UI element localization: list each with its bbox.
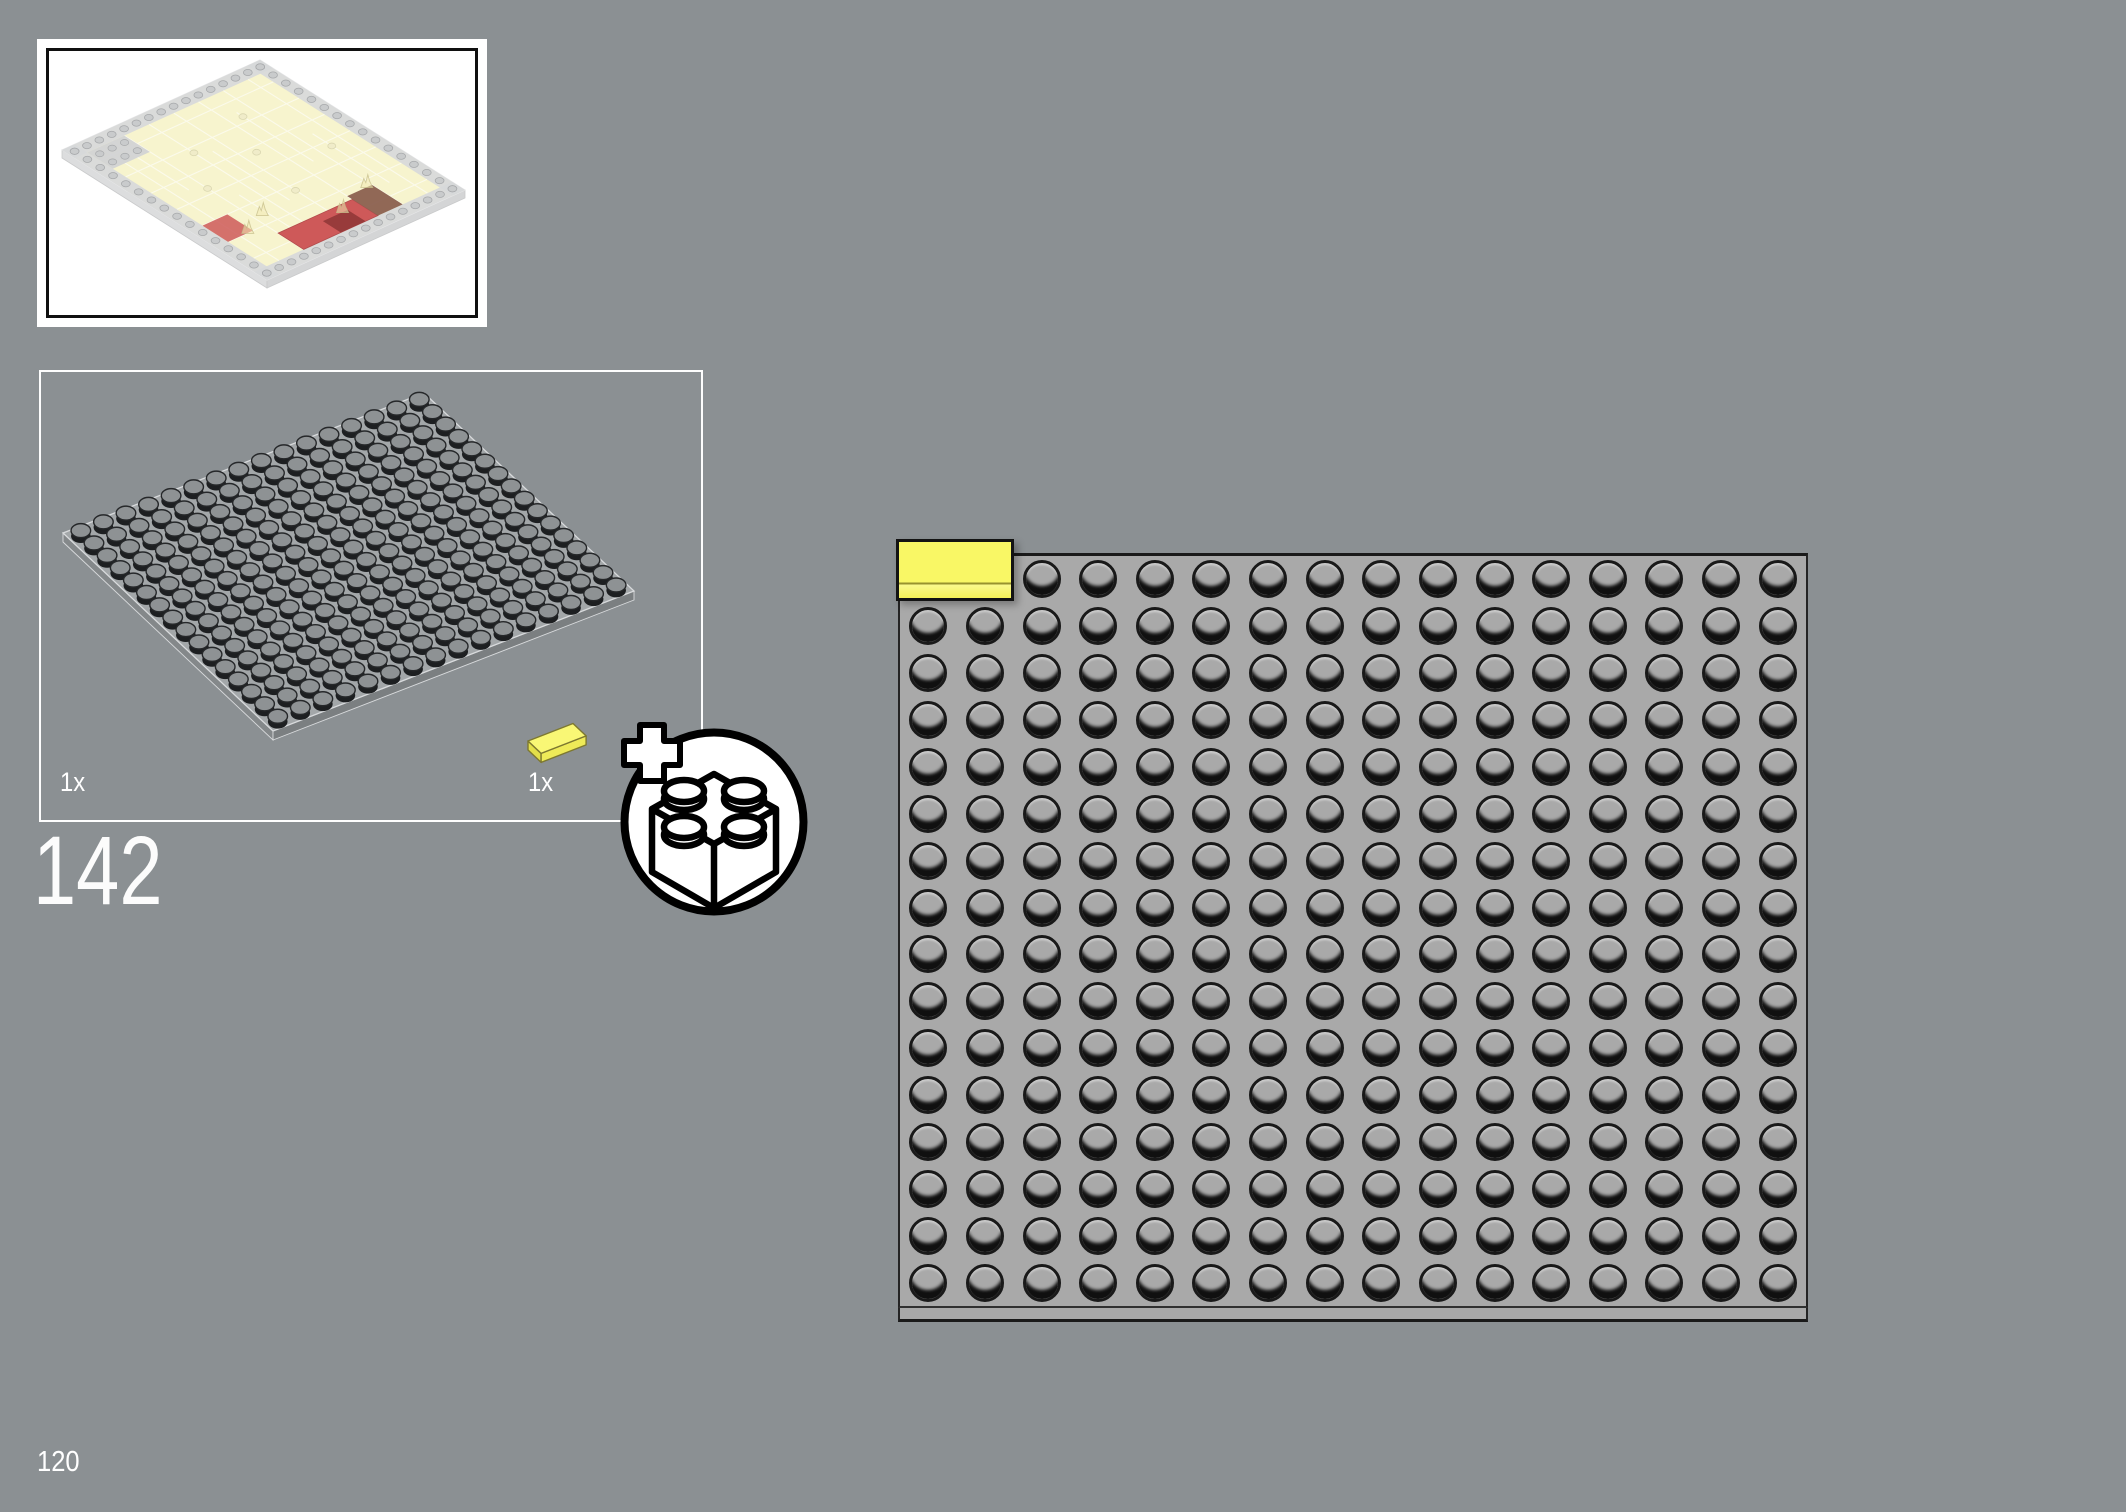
stud (1589, 1029, 1627, 1067)
stud (1589, 982, 1627, 1020)
stud (1079, 889, 1117, 927)
stud (1136, 935, 1174, 973)
part-quantity-tile: 1x (528, 769, 553, 796)
stud (1249, 1170, 1287, 1208)
stud (1419, 982, 1457, 1020)
parts-callout-box (39, 370, 703, 822)
stud (966, 1264, 1004, 1302)
stud (1249, 982, 1287, 1020)
stud (1079, 1123, 1117, 1161)
stud (1136, 842, 1174, 880)
stud (1419, 654, 1457, 692)
stud (1362, 842, 1400, 880)
stud (1476, 1076, 1514, 1114)
stud (1362, 560, 1400, 598)
stud (1136, 560, 1174, 598)
stud (1589, 607, 1627, 645)
part-tile-1x2-yellow (528, 724, 586, 763)
stud (1192, 1170, 1230, 1208)
stud (1136, 748, 1174, 786)
stud (1362, 889, 1400, 927)
stud (1759, 560, 1797, 598)
stud (1532, 607, 1570, 645)
stud (1249, 560, 1287, 598)
stud (1532, 1264, 1570, 1302)
stud (1419, 607, 1457, 645)
stud (1136, 1217, 1174, 1255)
main-plate-16x16 (898, 553, 1808, 1308)
stud (1136, 1123, 1174, 1161)
stud (1419, 748, 1457, 786)
stud (1079, 1217, 1117, 1255)
stud (1136, 795, 1174, 833)
stud-field (900, 556, 1806, 1306)
stud (1306, 560, 1344, 598)
stud (1306, 1076, 1344, 1114)
stud (1589, 842, 1627, 880)
preview-box (46, 48, 478, 318)
stud (1136, 889, 1174, 927)
stud (1419, 1170, 1457, 1208)
stud (1249, 842, 1287, 880)
stud (1249, 701, 1287, 739)
stud (1023, 748, 1061, 786)
stud (1249, 1076, 1287, 1114)
preview-render (62, 60, 465, 288)
stud (1702, 1029, 1740, 1067)
stud (1532, 935, 1570, 973)
stud (1589, 1076, 1627, 1114)
stud (1759, 1123, 1797, 1161)
parts-illustration (41, 372, 701, 820)
instruction-page: { "page": { "step_number": "142", "page_… (0, 0, 2126, 1512)
stud (1023, 1264, 1061, 1302)
stud (1023, 889, 1061, 927)
stud (1589, 701, 1627, 739)
stud (1362, 1029, 1400, 1067)
stud (1306, 1170, 1344, 1208)
stud (1136, 1170, 1174, 1208)
stud (1362, 795, 1400, 833)
stud (1192, 701, 1230, 739)
stud (1589, 654, 1627, 692)
stud (1759, 1170, 1797, 1208)
stud (1306, 842, 1344, 880)
stud (1136, 1264, 1174, 1302)
stud (1192, 607, 1230, 645)
stud (1702, 842, 1740, 880)
stud (1476, 982, 1514, 1020)
stud (1419, 1029, 1457, 1067)
stud (1079, 842, 1117, 880)
stud (1702, 982, 1740, 1020)
stud (1702, 701, 1740, 739)
stud (1645, 982, 1683, 1020)
stud (1645, 607, 1683, 645)
stud (1419, 795, 1457, 833)
stud (1362, 982, 1400, 1020)
stud (1419, 701, 1457, 739)
stud (1589, 748, 1627, 786)
stud (1136, 607, 1174, 645)
stud (1079, 1264, 1117, 1302)
stud (1023, 1076, 1061, 1114)
stud (1645, 701, 1683, 739)
stud (1645, 654, 1683, 692)
stud (966, 935, 1004, 973)
stud (1532, 560, 1570, 598)
stud (1702, 607, 1740, 645)
stud (909, 701, 947, 739)
stud (1476, 1217, 1514, 1255)
stud (1759, 701, 1797, 739)
stud (1192, 842, 1230, 880)
stud (1249, 1264, 1287, 1302)
stud (1645, 889, 1683, 927)
stud (1476, 1123, 1514, 1161)
stud (1192, 935, 1230, 973)
stud (1419, 1123, 1457, 1161)
stud (1759, 795, 1797, 833)
stud (1023, 701, 1061, 739)
stud (1702, 1217, 1740, 1255)
stud (1079, 654, 1117, 692)
stud (1476, 1170, 1514, 1208)
stud (1192, 1217, 1230, 1255)
stud (1702, 935, 1740, 973)
stud (1306, 1029, 1344, 1067)
stud (1759, 748, 1797, 786)
stud (1476, 842, 1514, 880)
stud (1645, 560, 1683, 598)
stud (1645, 1264, 1683, 1302)
stud (1476, 935, 1514, 973)
stud (1192, 654, 1230, 692)
stud (1192, 1029, 1230, 1067)
stud (1306, 982, 1344, 1020)
stud (1759, 1264, 1797, 1302)
stud (1079, 1029, 1117, 1067)
stud (1759, 1029, 1797, 1067)
stud (1476, 748, 1514, 786)
stud (909, 1123, 947, 1161)
stud (1023, 842, 1061, 880)
stud (1249, 1123, 1287, 1161)
stud (1419, 1076, 1457, 1114)
stud (1759, 654, 1797, 692)
stud (1702, 1264, 1740, 1302)
stud (966, 842, 1004, 880)
stud (1023, 1029, 1061, 1067)
stud (909, 982, 947, 1020)
main-plate-side-edge (898, 1308, 1808, 1322)
stud (1023, 1217, 1061, 1255)
stud (1702, 748, 1740, 786)
stud (1362, 748, 1400, 786)
stud (1192, 1123, 1230, 1161)
stud (1476, 654, 1514, 692)
stud (1079, 935, 1117, 973)
stud (1023, 982, 1061, 1020)
stud (1136, 1076, 1174, 1114)
stud (1419, 889, 1457, 927)
stud (966, 654, 1004, 692)
stud (1362, 1076, 1400, 1114)
stud (1306, 889, 1344, 927)
stud (1532, 1170, 1570, 1208)
stud (1306, 1264, 1344, 1302)
stud (966, 748, 1004, 786)
stud (1362, 1217, 1400, 1255)
stud (1645, 1029, 1683, 1067)
stud (1249, 1029, 1287, 1067)
stud (1136, 654, 1174, 692)
stud (1589, 1264, 1627, 1302)
stud (1306, 1123, 1344, 1161)
stud (1192, 982, 1230, 1020)
stud (1192, 560, 1230, 598)
stud (909, 795, 947, 833)
stud (1532, 842, 1570, 880)
stud (1645, 935, 1683, 973)
stud (1136, 701, 1174, 739)
stud (1249, 1217, 1287, 1255)
stud (1702, 889, 1740, 927)
stud (1532, 1217, 1570, 1255)
stud (1249, 889, 1287, 927)
stud (1645, 1123, 1683, 1161)
stud (1079, 748, 1117, 786)
stud (909, 1076, 947, 1114)
stud (1476, 795, 1514, 833)
stud (1023, 1170, 1061, 1208)
stud (1249, 654, 1287, 692)
stud (1249, 748, 1287, 786)
stud (1702, 1123, 1740, 1161)
stud (1079, 982, 1117, 1020)
stud (1532, 1029, 1570, 1067)
stud (966, 889, 1004, 927)
stud (909, 935, 947, 973)
stud (1362, 701, 1400, 739)
stud (1702, 1076, 1740, 1114)
stud (1079, 795, 1117, 833)
stud (966, 701, 1004, 739)
stud (1419, 560, 1457, 598)
stud (909, 842, 947, 880)
stud (1759, 889, 1797, 927)
stud (1589, 1123, 1627, 1161)
stud (966, 982, 1004, 1020)
stud (909, 1217, 947, 1255)
stud (909, 1029, 947, 1067)
stud (909, 1170, 947, 1208)
stud (1702, 560, 1740, 598)
stud (1589, 889, 1627, 927)
step-number: 142 (33, 822, 162, 919)
stud (1759, 607, 1797, 645)
stud (1759, 982, 1797, 1020)
stud (1645, 1217, 1683, 1255)
stud (1645, 748, 1683, 786)
stud (1759, 1217, 1797, 1255)
stud (1192, 1264, 1230, 1302)
stud (1306, 795, 1344, 833)
stud (1532, 701, 1570, 739)
stud (1362, 1123, 1400, 1161)
stud (1589, 1217, 1627, 1255)
page-number: 120 (37, 1448, 80, 1477)
stud (909, 748, 947, 786)
stud (1476, 701, 1514, 739)
part-quantity-plate: 1x (60, 769, 85, 796)
stud (1645, 795, 1683, 833)
stud (1249, 795, 1287, 833)
stud (1532, 748, 1570, 786)
stud (1192, 1076, 1230, 1114)
stud (1306, 701, 1344, 739)
stud (1362, 1264, 1400, 1302)
stud (1192, 889, 1230, 927)
stud (1249, 935, 1287, 973)
stud (1645, 1170, 1683, 1208)
stud (1079, 607, 1117, 645)
stud (966, 1217, 1004, 1255)
stud (1645, 1076, 1683, 1114)
stud (1306, 748, 1344, 786)
stud (1306, 1217, 1344, 1255)
stud (1362, 935, 1400, 973)
stud (1589, 1170, 1627, 1208)
stud (1532, 982, 1570, 1020)
stud (1136, 1029, 1174, 1067)
stud (1079, 1076, 1117, 1114)
stud (1023, 607, 1061, 645)
plus-icon (618, 719, 686, 787)
stud (1023, 560, 1061, 598)
stud (966, 1076, 1004, 1114)
stud (1419, 842, 1457, 880)
stud (1306, 654, 1344, 692)
stud (909, 654, 947, 692)
stud (1023, 935, 1061, 973)
stud (1023, 1123, 1061, 1161)
stud (909, 607, 947, 645)
stud (1419, 1264, 1457, 1302)
stud (966, 1170, 1004, 1208)
stud (966, 1123, 1004, 1161)
stud (1419, 1217, 1457, 1255)
stud (1702, 1170, 1740, 1208)
stud (1306, 935, 1344, 973)
stud (1362, 607, 1400, 645)
stud (1249, 607, 1287, 645)
stud (1532, 889, 1570, 927)
stud (1306, 607, 1344, 645)
stud (1532, 654, 1570, 692)
stud (1419, 935, 1457, 973)
stud (909, 889, 947, 927)
stud (1192, 748, 1230, 786)
stud (1192, 795, 1230, 833)
stud (1476, 1264, 1514, 1302)
stud (1136, 982, 1174, 1020)
stud (1476, 607, 1514, 645)
subassembly-preview-image (49, 51, 475, 315)
stud (1702, 795, 1740, 833)
stud (966, 795, 1004, 833)
placed-yellow-tile (896, 539, 1014, 601)
stud (1702, 654, 1740, 692)
stud (1476, 889, 1514, 927)
stud (1532, 1076, 1570, 1114)
stud (1079, 1170, 1117, 1208)
stud (1079, 701, 1117, 739)
stud (1759, 935, 1797, 973)
stud (1589, 795, 1627, 833)
stud (1759, 1076, 1797, 1114)
stud (1362, 654, 1400, 692)
stud (1023, 795, 1061, 833)
stud (1645, 842, 1683, 880)
stud (1023, 654, 1061, 692)
stud (1532, 795, 1570, 833)
stud (1476, 560, 1514, 598)
stud (1079, 560, 1117, 598)
stud (1589, 560, 1627, 598)
stud (1532, 1123, 1570, 1161)
stud (1362, 1170, 1400, 1208)
stud (966, 607, 1004, 645)
stud (1476, 1029, 1514, 1067)
stud (966, 1029, 1004, 1067)
stud (1759, 842, 1797, 880)
stud (1589, 935, 1627, 973)
stud (909, 1264, 947, 1302)
